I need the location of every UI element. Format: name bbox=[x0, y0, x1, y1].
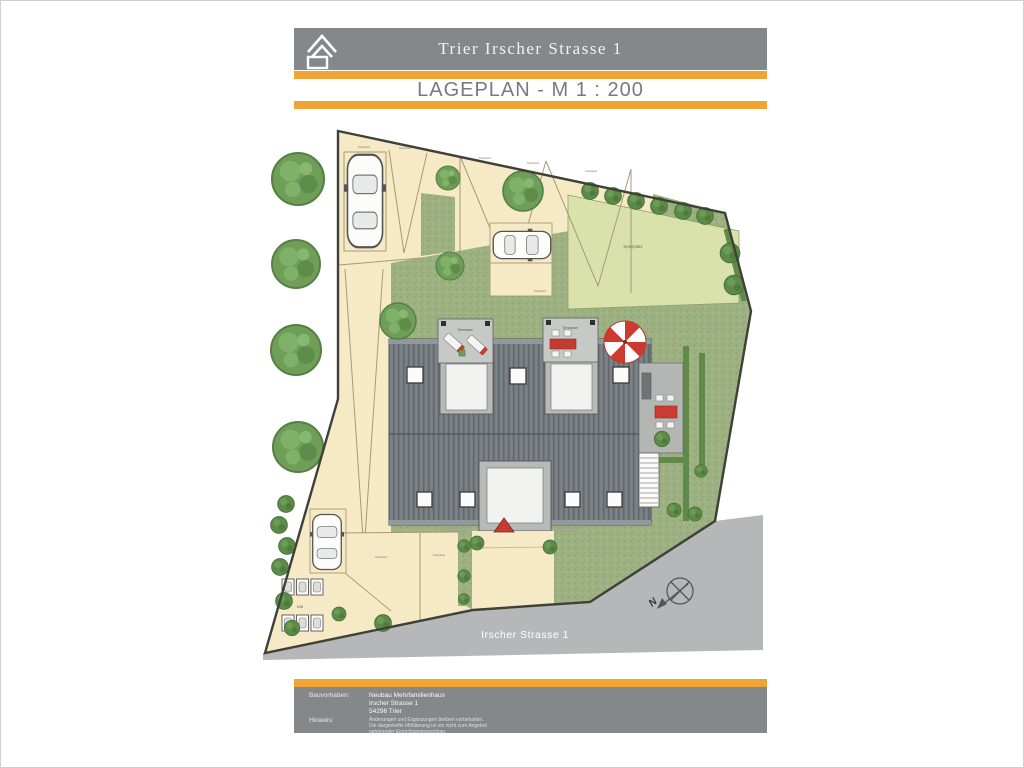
accent-bar-footer bbox=[294, 679, 767, 687]
tree-icon bbox=[271, 325, 321, 375]
note-label: Hinweis: bbox=[309, 717, 334, 724]
waste-bin-icon bbox=[311, 615, 323, 631]
tree-icon bbox=[503, 171, 543, 211]
plan-subtitle: LAGEPLAN - M 1 : 200 bbox=[294, 79, 767, 101]
project-line: Irscher Strasse 1 bbox=[369, 700, 418, 707]
terrace-label: Terrasse bbox=[457, 327, 473, 332]
header-banner: Trier Irscher Strasse 1 bbox=[294, 28, 767, 70]
tree-icon bbox=[273, 422, 323, 472]
footer-info-box: Bauvorhaben: Neubau Mehrfamilienhaus Irs… bbox=[294, 687, 767, 733]
entrance-path bbox=[472, 518, 554, 609]
terrace-label: Terrasse bbox=[562, 325, 578, 330]
green-wedge bbox=[421, 193, 455, 256]
svg-text:Stellplatz: Stellplatz bbox=[479, 156, 492, 160]
project-label: Bauvorhaben: bbox=[309, 692, 349, 699]
tree-icon bbox=[272, 240, 320, 288]
svg-text:Stellplatz: Stellplatz bbox=[534, 289, 547, 293]
waste-label: Müll bbox=[297, 605, 304, 609]
car-icon bbox=[310, 515, 344, 570]
site-plan: Spielplatz Stellplatz Stellplatz Stellpl… bbox=[263, 126, 763, 671]
car-icon bbox=[493, 229, 551, 262]
plan-document-page: Trier Irscher Strasse 1 LAGEPLAN - M 1 :… bbox=[0, 0, 1024, 768]
waste-bin-icon bbox=[297, 579, 309, 595]
tree-icon bbox=[436, 252, 464, 280]
waste-bin-icon bbox=[311, 579, 323, 595]
tree-icon bbox=[380, 303, 416, 339]
road-label: Irscher Strasse 1 bbox=[481, 629, 569, 641]
tree-icon bbox=[272, 153, 324, 205]
dormer-right bbox=[545, 359, 598, 414]
lawn-label: Spielplatz bbox=[623, 244, 643, 249]
svg-text:Stellplatz: Stellplatz bbox=[585, 169, 598, 173]
svg-text:Stellplatz: Stellplatz bbox=[358, 145, 371, 149]
terrace-right: Terrasse bbox=[543, 318, 598, 362]
tree-icon bbox=[436, 166, 460, 190]
accent-bar-subtitle bbox=[294, 101, 767, 109]
note-line: gehörender Einrichtungsvorschlag. bbox=[369, 729, 446, 735]
page-title: Trier Irscher Strasse 1 bbox=[294, 28, 767, 70]
stairs bbox=[639, 453, 659, 507]
terrace-left: Terrasse bbox=[438, 319, 493, 363]
project-line: 54296 Trier bbox=[369, 708, 402, 715]
car-icon bbox=[344, 155, 386, 248]
svg-text:Stellplatz: Stellplatz bbox=[433, 553, 446, 557]
dormer-left bbox=[440, 359, 493, 414]
parasol-icon bbox=[604, 321, 646, 363]
svg-text:Stellplatz: Stellplatz bbox=[527, 161, 540, 165]
svg-text:Stellplatz: Stellplatz bbox=[375, 555, 388, 559]
project-line: Neubau Mehrfamilienhaus bbox=[369, 692, 445, 699]
